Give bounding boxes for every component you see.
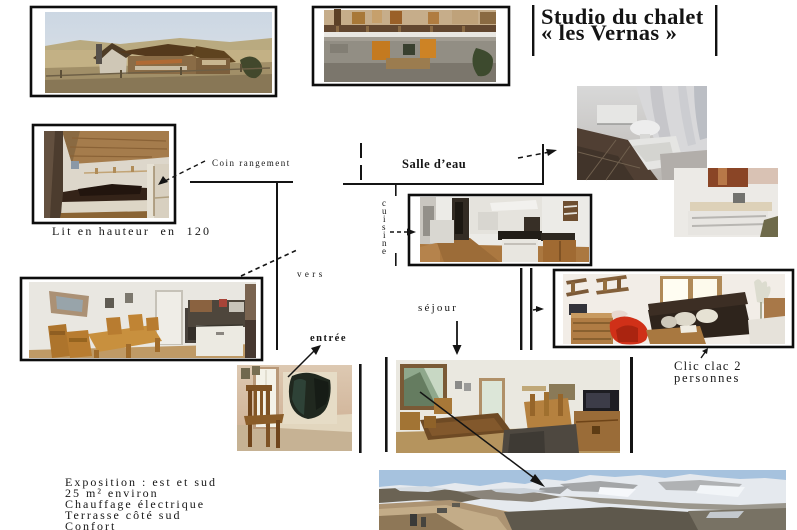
svg-text:vers: vers <box>297 269 326 279</box>
svg-text:Coin rangement: Coin rangement <box>212 158 291 168</box>
svg-text:entrée: entrée <box>310 333 347 344</box>
svg-text:« les Vernas »: « les Vernas » <box>541 20 677 45</box>
svg-text:Lit en hauteur en 120: Lit en hauteur en 120 <box>52 224 211 238</box>
svg-text:Confort: Confort <box>65 519 116 530</box>
svg-text:Salle d’eau: Salle d’eau <box>402 157 466 171</box>
svg-text:personnes: personnes <box>674 371 740 385</box>
svg-text:e: e <box>382 246 386 256</box>
svg-text:séjour: séjour <box>418 302 458 314</box>
